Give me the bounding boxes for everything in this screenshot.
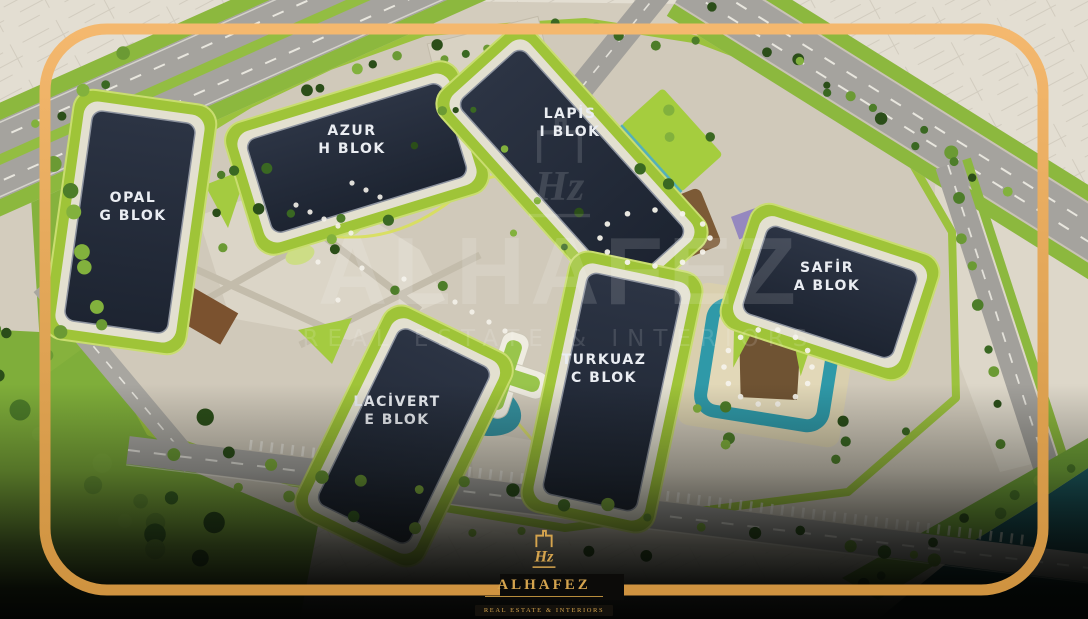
- logo-brand-text: ALHAFEZ: [485, 577, 603, 597]
- label-opal-block: G BLOK: [99, 208, 166, 224]
- label-turkuaz-block: C BLOK: [571, 370, 637, 386]
- label-azur-block: H BLOK: [318, 141, 385, 157]
- svg-text:Hz: Hz: [534, 547, 555, 565]
- label-turkuaz-name: TURKUAZ: [562, 352, 647, 368]
- label-lapis-block: I BLOK: [540, 124, 601, 140]
- site-plan-map: OPAL G BLOK AZUR H BLOK LAPİS I BLOK SAF…: [0, 0, 1088, 619]
- label-safir-name: SAFİR: [800, 259, 854, 276]
- logo-building-icon: Hz: [524, 528, 564, 570]
- label-lacivert-block: E BLOK: [364, 412, 429, 428]
- label-azur-name: AZUR: [327, 123, 376, 139]
- label-lacivert-name: LACİVERT: [353, 393, 440, 410]
- label-lapis-name: LAPİS: [544, 105, 597, 122]
- brand-logo: Hz ALHAFEZ REAL ESTATE & INTERIORS: [424, 528, 664, 616]
- label-safir-block: A BLOK: [794, 278, 861, 294]
- label-opal-name: OPAL: [110, 190, 157, 206]
- site-plan-screenshot: OPAL G BLOK AZUR H BLOK LAPİS I BLOK SAF…: [0, 0, 1088, 619]
- logo-tagline: REAL ESTATE & INTERIORS: [475, 605, 613, 616]
